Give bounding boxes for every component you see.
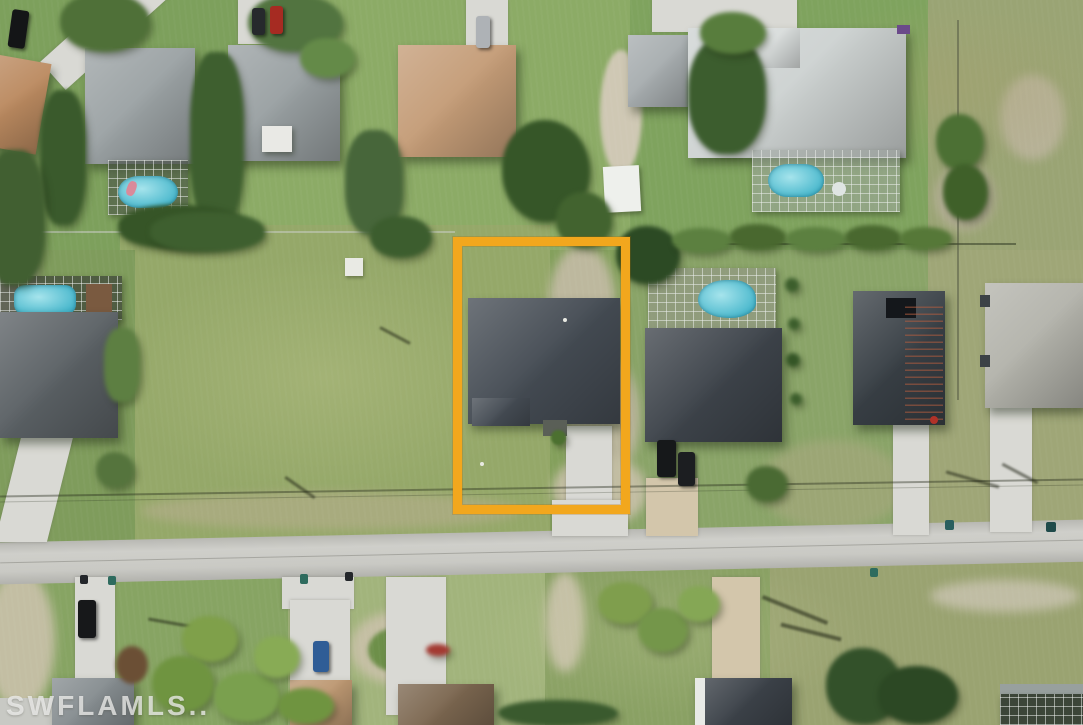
van-silver <box>476 16 490 48</box>
hedge <box>498 700 618 725</box>
spa <box>832 182 846 196</box>
trash-bin <box>80 575 88 584</box>
driveway <box>712 577 760 689</box>
roof-batten-lines <box>905 302 943 420</box>
car-blue <box>313 641 329 672</box>
palm-tree <box>678 586 720 622</box>
hedge <box>672 228 732 253</box>
trash-bin <box>108 576 116 585</box>
house-roof <box>985 283 1083 408</box>
tree <box>190 52 244 227</box>
hedge <box>943 164 988 220</box>
tree <box>96 452 134 488</box>
palm-tree <box>700 12 766 54</box>
house-roof-brown <box>398 684 494 725</box>
palm-tree <box>278 688 334 724</box>
tree <box>150 212 265 252</box>
aerial-photo: SWFLAMLS.. <box>0 0 1083 725</box>
trash-bin <box>345 572 353 581</box>
car-black <box>678 452 695 486</box>
tree <box>0 150 45 285</box>
white-slab <box>345 258 363 276</box>
canopy-shed <box>603 165 641 213</box>
palm-tree <box>254 636 300 678</box>
trash-bin <box>945 520 954 530</box>
trash-bin <box>1046 522 1056 532</box>
palm-tree <box>746 466 788 502</box>
house-roof <box>85 48 195 164</box>
watermark: SWFLAMLS.. <box>6 690 210 722</box>
car-dark <box>252 8 265 35</box>
palm-tree <box>182 616 238 662</box>
trash-bin <box>870 568 878 577</box>
house-roof <box>695 678 792 725</box>
ac-unit <box>980 295 990 307</box>
palm-tree <box>214 672 280 722</box>
dirt-patch <box>545 572 585 672</box>
hedge <box>730 224 786 250</box>
trash-bin <box>300 574 308 584</box>
tree <box>370 216 432 258</box>
property-highlight-box <box>453 237 630 514</box>
hedge <box>786 227 846 251</box>
hedge <box>900 227 952 250</box>
hedge <box>845 225 901 250</box>
car-black <box>78 600 96 638</box>
purple-object <box>897 25 910 34</box>
palm-tree <box>300 38 355 78</box>
shrub <box>790 393 802 405</box>
shrub <box>785 278 799 292</box>
palm-tree <box>104 328 140 402</box>
shrub <box>426 644 450 656</box>
shrub <box>788 318 800 330</box>
carport-canopy <box>262 126 292 152</box>
screen-enclosure <box>1000 694 1083 725</box>
car-red <box>270 6 283 34</box>
mulch-bed <box>116 646 148 684</box>
ac-unit <box>980 355 990 367</box>
dirt-patch <box>930 580 1080 612</box>
car-black <box>657 440 676 477</box>
palm-tree <box>638 608 688 652</box>
roof-fascia <box>695 678 705 725</box>
screen-enclosure-frame <box>1000 684 1083 694</box>
swimming-pool <box>768 164 824 197</box>
tree <box>878 666 958 724</box>
swimming-pool <box>698 280 756 318</box>
tree <box>40 90 86 225</box>
dirt-patch <box>1000 75 1065 160</box>
red-object <box>930 416 938 424</box>
house-roof <box>645 328 782 442</box>
driveway <box>990 400 1032 532</box>
house-roof-tan <box>398 45 516 157</box>
hedge <box>936 114 984 170</box>
swimming-pool <box>14 285 76 315</box>
house-roof <box>0 312 118 438</box>
shed-roof <box>86 284 112 312</box>
house-roof <box>628 35 690 107</box>
shrub <box>786 353 800 367</box>
